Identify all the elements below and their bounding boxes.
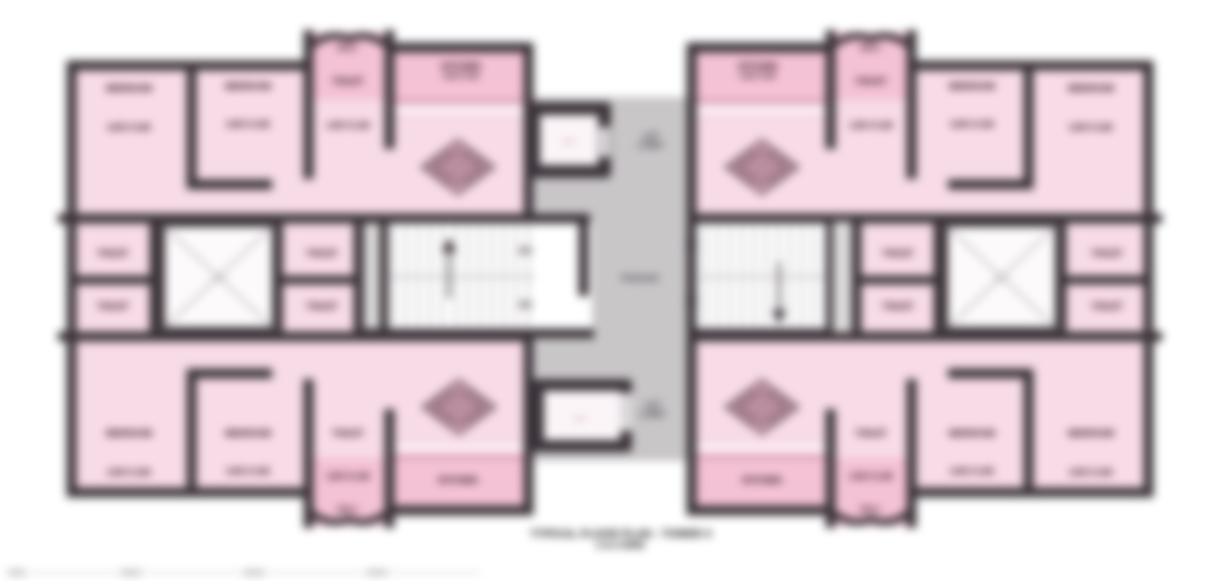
svg-text:LIFT: LIFT xyxy=(994,276,1009,283)
svg-text:TOILET: TOILET xyxy=(97,248,129,258)
svg-text:2 & 3 BHK: 2 & 3 BHK xyxy=(597,540,646,551)
svg-text:1.50 X 2.40: 1.50 X 2.40 xyxy=(326,472,369,481)
svg-text:1.50 X 2.40: 1.50 X 2.40 xyxy=(849,472,892,481)
svg-text:2.40 X 3.00: 2.40 X 3.00 xyxy=(740,73,776,80)
svg-text:1.50 X 2.40: 1.50 X 2.40 xyxy=(326,121,369,130)
svg-text:LIFT: LIFT xyxy=(573,416,586,423)
svg-text:3.05 X 3.60: 3.05 X 3.60 xyxy=(1069,468,1112,477)
svg-text:LIFT: LIFT xyxy=(212,276,227,283)
svg-text:BEDROOM: BEDROOM xyxy=(225,81,271,91)
svg-text:LIFT: LIFT xyxy=(562,139,575,146)
svg-text:BALC.: BALC. xyxy=(861,45,882,52)
svg-text:BEDROOM: BEDROOM xyxy=(1068,83,1114,93)
svg-text:3.05 X 3.35: 3.05 X 3.35 xyxy=(226,467,269,476)
svg-text:KITCHEN: KITCHEN xyxy=(438,475,477,485)
svg-text:3.05 X 3.35: 3.05 X 3.35 xyxy=(226,120,269,129)
svg-text:BEDROOM: BEDROOM xyxy=(106,428,152,438)
svg-text:TOILET: TOILET xyxy=(882,301,914,311)
svg-text:PASSAGE: PASSAGE xyxy=(621,274,659,283)
svg-text:BEDROOM: BEDROOM xyxy=(1068,428,1114,438)
svg-text:TOILET: TOILET xyxy=(332,428,364,438)
svg-text:TYPICAL FLOOR PLAN - TOWER 3: TYPICAL FLOOR PLAN - TOWER 3 xyxy=(530,528,711,540)
svg-text:TOILET: TOILET xyxy=(1091,248,1123,258)
svg-text:3.05 X 3.60: 3.05 X 3.60 xyxy=(1069,123,1112,132)
svg-text:TOILET: TOILET xyxy=(306,301,338,311)
svg-text:BEDROOM: BEDROOM xyxy=(949,81,995,91)
svg-text:3.05 X 3.60: 3.05 X 3.60 xyxy=(107,123,150,132)
svg-text:BALC.: BALC. xyxy=(338,506,359,513)
svg-text:BALC.: BALC. xyxy=(861,506,882,513)
svg-text:TOILET: TOILET xyxy=(882,248,914,258)
svg-text:TOILET: TOILET xyxy=(97,301,129,311)
svg-text:BEDROOM: BEDROOM xyxy=(106,83,152,93)
svg-text:KITCHEN: KITCHEN xyxy=(742,475,781,485)
svg-text:BEDROOM: BEDROOM xyxy=(225,428,271,438)
svg-text:2.40 X 3.00: 2.40 X 3.00 xyxy=(443,73,479,80)
svg-text:KITCHEN: KITCHEN xyxy=(738,61,777,71)
svg-text:TOILET: TOILET xyxy=(306,248,338,258)
svg-text:TOILET: TOILET xyxy=(855,76,887,86)
svg-text:TOILET: TOILET xyxy=(1091,301,1123,311)
svg-text:LOBBY: LOBBY xyxy=(638,141,665,150)
svg-text:3.05 X 3.35: 3.05 X 3.35 xyxy=(950,120,993,129)
svg-text:LIFT: LIFT xyxy=(645,401,662,410)
svg-text:KITCHEN: KITCHEN xyxy=(441,61,480,71)
svg-text:LIFT: LIFT xyxy=(643,132,660,141)
svg-text:TOILET: TOILET xyxy=(332,76,364,86)
svg-text:3.05 X 3.35: 3.05 X 3.35 xyxy=(950,467,993,476)
svg-text:1.50 X 2.40: 1.50 X 2.40 xyxy=(849,121,892,130)
svg-text:LOBBY: LOBBY xyxy=(640,410,667,419)
svg-text:3.05 X 3.60: 3.05 X 3.60 xyxy=(107,468,150,477)
svg-text:BEDROOM: BEDROOM xyxy=(949,428,995,438)
svg-text:TOILET: TOILET xyxy=(855,428,887,438)
svg-text:BALC.: BALC. xyxy=(338,45,359,52)
